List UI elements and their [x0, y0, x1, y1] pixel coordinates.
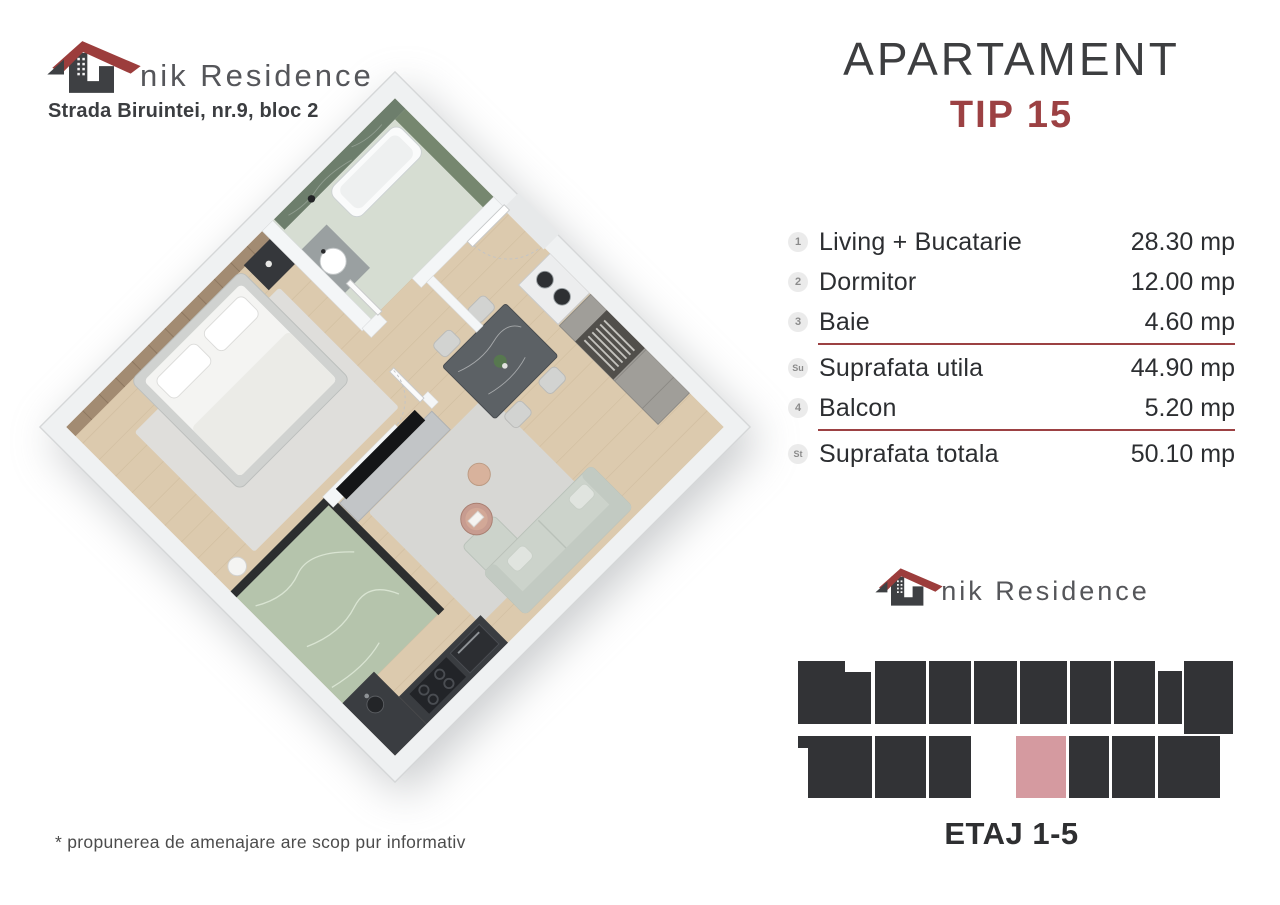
area-label: Suprafata utila [819, 354, 983, 383]
building-unit [929, 736, 971, 798]
building-unit [1114, 661, 1155, 724]
area-divider [818, 343, 1235, 345]
area-label: Baie [819, 308, 870, 337]
building-unit [1112, 736, 1155, 798]
building-unit [875, 661, 926, 724]
area-badge: 4 [788, 398, 808, 418]
area-value: 28.30 mp [1131, 228, 1235, 257]
area-value: 50.10 mp [1131, 440, 1235, 469]
area-label: Living + Bucatarie [819, 228, 1022, 257]
area-divider [818, 429, 1235, 431]
building-unit [875, 736, 926, 798]
area-badge: 3 [788, 312, 808, 332]
area-value: 12.00 mp [1131, 268, 1235, 297]
building-unit [1184, 661, 1233, 734]
building-unit [1158, 671, 1182, 724]
building-unit [1020, 661, 1067, 724]
area-value: 5.20 mp [1145, 394, 1235, 423]
building-unit-highlighted [1016, 736, 1066, 798]
apartment-type-label: TIP 15 [788, 94, 1235, 137]
building-unit [1069, 736, 1109, 798]
logo-roof-edge [876, 582, 888, 593]
building-unit [974, 661, 1017, 724]
area-value: 4.60 mp [1145, 308, 1235, 337]
logo-roof [52, 41, 140, 74]
apartment-title: APARTAMENT TIP 15 [788, 32, 1235, 137]
area-row: SuSuprafata utila44.90 mp [788, 348, 1235, 388]
unik-residence-logo-icon [873, 563, 945, 611]
area-label: Dormitor [819, 268, 916, 297]
area-label: Suprafata totala [819, 440, 999, 469]
floor-range-label: ETAJ 1-5 [788, 816, 1235, 852]
logo-roof [879, 568, 943, 591]
area-table: 1Living + Bucatarie28.30 mp2Dormitor12.0… [788, 222, 1235, 474]
logo-wordmark: nik Residence [140, 58, 374, 94]
area-badge: 2 [788, 272, 808, 292]
building-unit [1158, 736, 1220, 798]
area-badge: Su [788, 358, 808, 378]
area-row: 4Balcon5.20 mp [788, 388, 1235, 428]
header-logo: nik Residence Strada Biruintei, nr.9, bl… [44, 34, 374, 123]
area-badge: 1 [788, 232, 808, 252]
area-row: StSuprafata totala50.10 mp [788, 434, 1235, 474]
area-row: 2Dormitor12.00 mp [788, 262, 1235, 302]
floor-plan-render [20, 22, 780, 812]
disclaimer-note: * propunerea de amenajare are scop pur i… [55, 832, 466, 853]
area-label: Balcon [819, 394, 897, 423]
building-unit [1070, 661, 1111, 724]
area-row: 1Living + Bucatarie28.30 mp [788, 222, 1235, 262]
area-row: 3Baie4.60 mp [788, 302, 1235, 342]
building-floor-diagram [798, 658, 1235, 805]
building-unit [929, 661, 971, 724]
building-unit [798, 661, 845, 724]
apartment-title-line1: APARTAMENT [788, 32, 1235, 86]
area-value: 44.90 mp [1131, 354, 1235, 383]
logo-wordmark: nik Residence [941, 576, 1150, 607]
building-unit [845, 672, 871, 724]
building-floor-diagram-svg [798, 658, 1235, 800]
building-unit [808, 748, 872, 798]
project-address: Strada Biruintei, nr.9, bloc 2 [48, 100, 374, 123]
footer-logo: nik Residence [788, 563, 1235, 611]
unik-residence-logo-icon [44, 34, 144, 100]
area-badge: St [788, 444, 808, 464]
building-unit [798, 736, 872, 748]
